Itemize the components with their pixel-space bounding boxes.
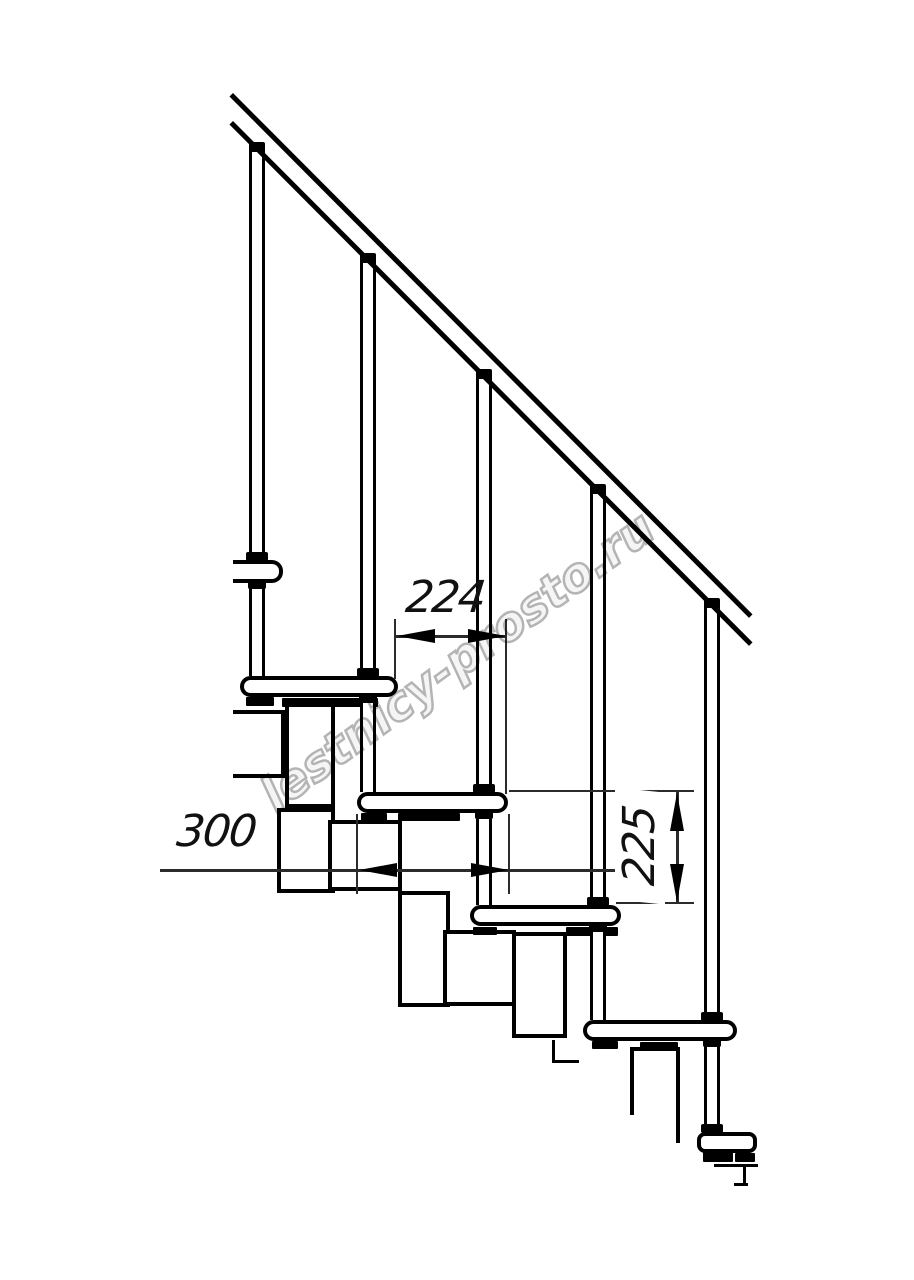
- baluster-rod: [704, 607, 720, 1020]
- frame-line: [714, 1164, 758, 1167]
- frame-line: [676, 1049, 680, 1143]
- dimension-arrowhead: [670, 793, 684, 831]
- base-bracket: [697, 1132, 757, 1153]
- tread: [233, 560, 283, 583]
- rod-collar: [248, 582, 266, 589]
- baluster-rod: [249, 151, 265, 560]
- baluster-rod: [249, 583, 265, 676]
- rod-collar: [587, 897, 609, 906]
- rod-collar: [701, 1124, 723, 1133]
- mount-foot: [361, 813, 387, 821]
- support-module: [630, 1047, 680, 1115]
- staircase-technical-drawing: 224 300 225 lestnicy-prosto.ru: [0, 0, 914, 1280]
- mount-foot: [703, 1152, 733, 1162]
- mount-foot: [640, 1042, 678, 1050]
- dimension-line: [508, 814, 510, 894]
- rod-collar: [475, 812, 493, 819]
- dimension-line: [356, 814, 358, 894]
- dimension-arrowhead: [471, 863, 509, 877]
- frame-line: [734, 1183, 748, 1186]
- baluster-rod: [360, 262, 376, 676]
- rod-collar: [701, 1012, 723, 1021]
- tread: [583, 1020, 737, 1041]
- baluster-rod: [704, 1041, 720, 1132]
- mount-foot: [246, 697, 274, 706]
- rod-collar: [473, 784, 495, 793]
- dimension-arrowhead: [670, 864, 684, 902]
- frame-line: [552, 1060, 579, 1063]
- dimension-line: [509, 790, 694, 792]
- dimension-label-225: 225: [615, 787, 665, 904]
- rod-collar: [703, 1040, 721, 1047]
- rod-collar: [589, 925, 607, 932]
- mount-foot: [398, 813, 460, 821]
- support-module: [443, 930, 516, 1006]
- support-module: [328, 820, 402, 891]
- mount-foot: [592, 1041, 618, 1049]
- tread: [357, 792, 508, 813]
- support-module: [512, 932, 567, 1038]
- rod-collar: [246, 552, 268, 561]
- mount-foot: [473, 927, 497, 935]
- dimension-arrowhead: [359, 863, 397, 877]
- mount-foot: [735, 1153, 755, 1162]
- baluster-rod: [590, 926, 606, 1020]
- tread: [470, 905, 621, 926]
- baluster-rod: [476, 813, 492, 905]
